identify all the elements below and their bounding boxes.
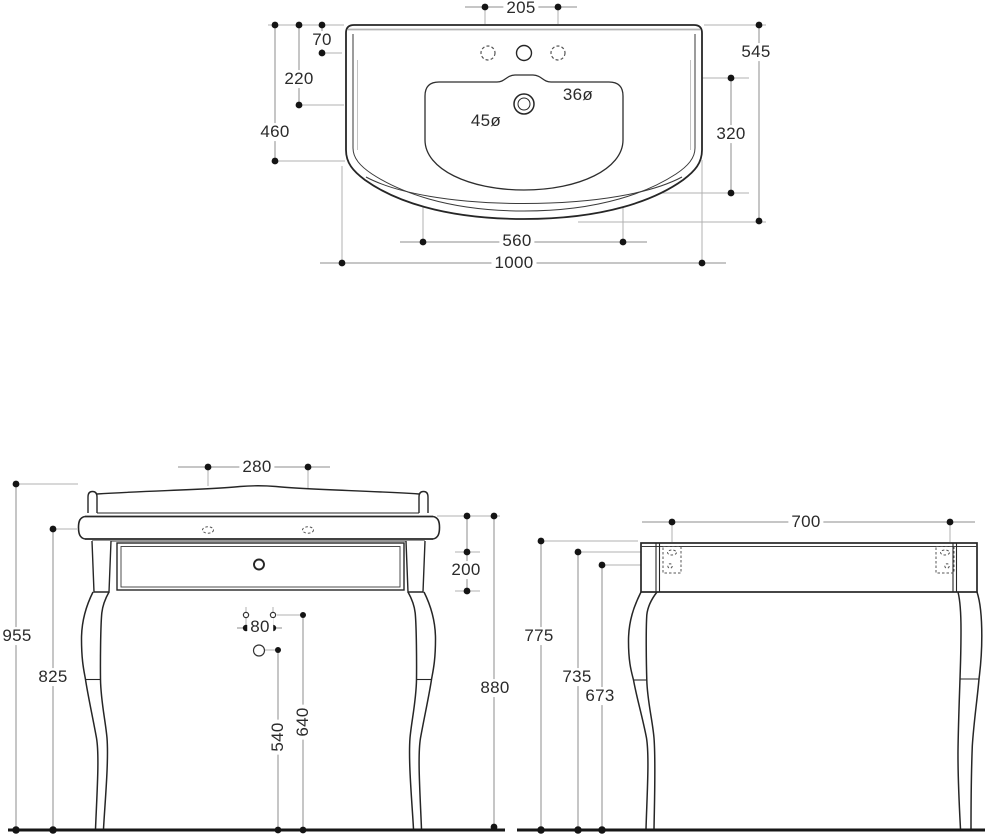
worktop-bullnose-left	[79, 517, 86, 540]
left-leg-inner-edge	[100, 592, 109, 829]
dim-fixing-hole-spacing: 80	[247, 618, 273, 636]
technical-drawing-canvas: 205 70 220 460 545 320 36ø 45ø 560 1000 …	[0, 0, 990, 835]
siphon-hole	[254, 645, 265, 656]
worktop-slot-right	[303, 527, 314, 533]
dim-bracket-slot-height: 735	[559, 668, 594, 686]
washbasin-top-view	[268, 4, 766, 267]
console-front-view	[8, 464, 505, 834]
dim-fixing-holes-height: 640	[294, 704, 312, 739]
dim-slot-spacing: 280	[239, 458, 274, 476]
faucet-hole-right-optional	[551, 46, 565, 60]
dim-overall-depth: 545	[738, 43, 773, 61]
drain-hole-outer	[514, 94, 534, 114]
left-leg-outer-edge	[82, 592, 98, 829]
dim-apron-height: 200	[448, 561, 483, 579]
leg-block-left	[92, 541, 111, 592]
side-worktop	[641, 543, 977, 592]
dim-rim-to-faucet-holes: 70	[309, 31, 335, 49]
side-back-leg-outer	[971, 592, 982, 829]
backsplash-post-right	[419, 492, 428, 514]
side-back-leg-inner	[958, 592, 961, 829]
dim-faucet-hole-diameter: 36ø	[560, 86, 596, 104]
side-front-leg-outer	[629, 592, 648, 829]
backsplash-post-left	[88, 492, 97, 514]
dim-faucet-hole-spacing: 205	[503, 0, 538, 17]
dim-underside-height: 825	[35, 668, 70, 686]
backsplash-top-edge	[97, 486, 419, 494]
dim-overall-width: 1000	[491, 254, 536, 272]
right-leg-outer-edge	[419, 592, 435, 829]
console-side-legs	[629, 592, 982, 829]
faucet-hole-center	[517, 46, 532, 61]
dim-side-depth: 460	[257, 123, 292, 141]
worktop-bullnose-right	[433, 517, 440, 540]
dim-bracket-screw-height: 673	[582, 687, 617, 705]
faucet-hole-left-optional	[481, 46, 495, 60]
dim-top-depth: 700	[788, 513, 823, 531]
dim-drain-hole-diameter: 45ø	[468, 112, 504, 130]
dim-front-height: 775	[521, 627, 556, 645]
fixing-hole-right	[270, 612, 275, 617]
right-leg-inner-edge	[408, 592, 417, 829]
dim-overall-height: 955	[0, 627, 35, 645]
dim-bowl-width: 560	[499, 232, 534, 250]
drawer-knob	[254, 560, 264, 570]
dim-siphon-hole-height: 540	[269, 719, 287, 754]
worktop-slot-left	[203, 527, 214, 533]
leg-block-right	[406, 541, 425, 592]
dim-rim-to-drain-center: 220	[281, 70, 316, 88]
fixing-hole-left	[243, 612, 248, 617]
dim-worktop-height: 880	[477, 679, 512, 697]
dim-bowl-depth: 320	[713, 125, 748, 143]
